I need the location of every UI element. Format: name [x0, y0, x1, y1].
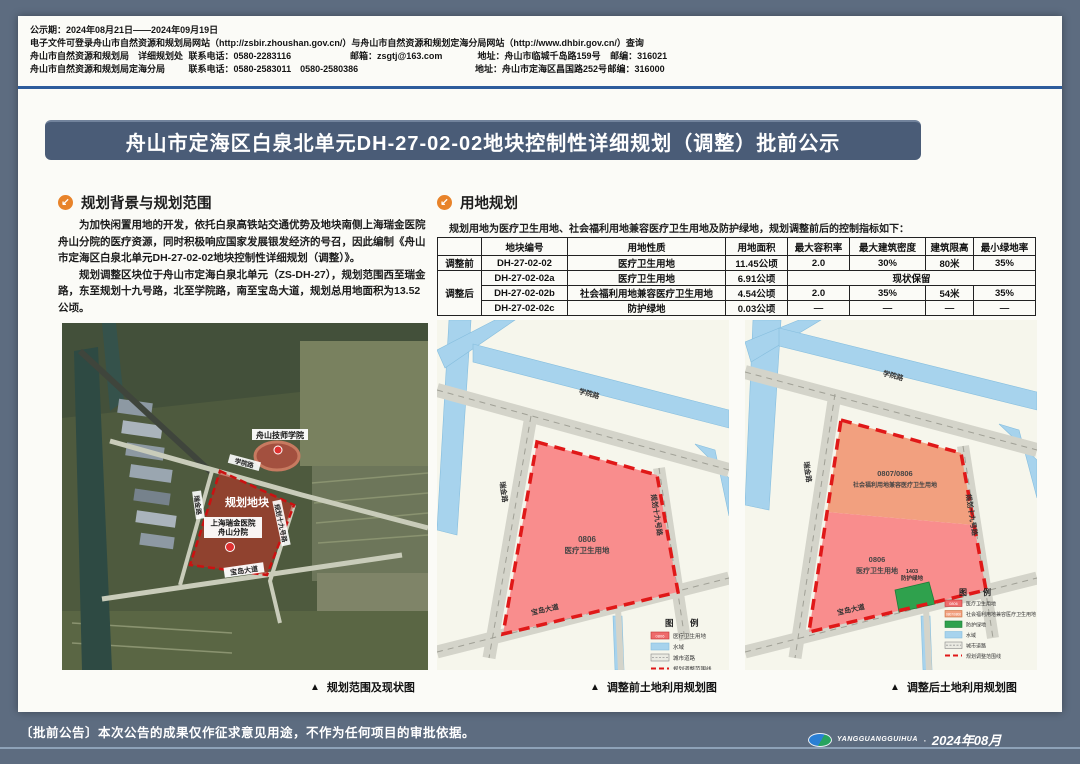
map-before-adjustment: 0806 医疗卫生用地 学院路 瑞金路 规划十九号路 宝岛大道 图 例 0806…	[437, 320, 729, 675]
title-banner: 舟山市定海区白泉北单元DH-27-02-02地块控制性详细规划（调整）批前公示	[45, 120, 921, 160]
cell-code: DH-27-02-02b	[482, 286, 568, 301]
cell-green: 35%	[974, 286, 1036, 301]
dept2-tel: 联系电话：0580-2583011 0580-2580386	[189, 63, 473, 76]
cell-use: 社会福利用地兼容医疗卫生用地	[568, 286, 726, 301]
svg-text:城市道路: 城市道路	[673, 654, 696, 662]
cell-far: 2.0	[788, 256, 850, 271]
legend-swatch-green	[945, 621, 962, 628]
svg-text:舟山技师学院: 舟山技师学院	[256, 430, 304, 440]
parcel-medical-use: 医疗卫生用地	[856, 566, 898, 575]
svg-text:城市道路: 城市道路	[966, 643, 986, 650]
parcel-medical-code: 0806	[869, 555, 886, 564]
cell-density: 35%	[850, 286, 926, 301]
map-after-image: 0807/0806 社会福利用地兼容医疗卫生用地 0806 医疗卫生用地 140…	[745, 320, 1037, 670]
svg-text:水域: 水域	[673, 643, 685, 651]
page-title: 舟山市定海区白泉北单元DH-27-02-02地块控制性详细规划（调整）批前公示	[126, 127, 841, 156]
svg-text:水域: 水域	[966, 632, 976, 639]
landuse-intro: 规划用地为医疗卫生用地、社会福利用地兼容医疗卫生用地及防护绿地，规划调整前后的控…	[449, 220, 909, 235]
svg-text:医疗卫生用地: 医疗卫生用地	[673, 632, 707, 640]
dept2-zip: 邮编：316000	[608, 63, 665, 76]
notice-period: 公示期：2024年08月21日——2024年09月19日	[30, 24, 667, 37]
footer-brand-row: YANGGUANGGUIHUA · 2024年08月	[808, 730, 1001, 749]
website-line: 电子文件可登录舟山市自然资源和规划局网站（http://zsbir.zhoush…	[30, 37, 667, 50]
svg-text:0806: 0806	[949, 602, 957, 606]
cell-use: 医疗卫生用地	[568, 271, 726, 286]
cell-code: DH-27-02-02a	[482, 271, 568, 286]
table-row: DH-27-02-02b 社会福利用地兼容医疗卫生用地 4.54公顷 2.0 3…	[438, 286, 1036, 301]
section-arrow-icon: ↙	[437, 195, 452, 210]
cell-height: 54米	[926, 286, 974, 301]
group-after: 调整后	[438, 271, 482, 316]
header-far: 最大容积率	[788, 238, 850, 256]
brand-logo-icon	[808, 733, 832, 747]
notice-page: 公示期：2024年08月21日——2024年09月19日 电子文件可登录舟山市自…	[18, 16, 1062, 712]
svg-text:防护绿地: 防护绿地	[966, 622, 986, 629]
cell-use: 防护绿地	[568, 301, 726, 316]
parcel-welfare-use: 社会福利用地兼容医疗卫生用地	[852, 481, 937, 489]
map-before-caption: ▲ 调整前土地利用规划图	[590, 679, 717, 695]
section-landuse-heading: ↙ 用地规划	[437, 192, 518, 213]
section-arrow-icon: ↙	[58, 195, 73, 210]
dept1-zip: 邮编：316021	[610, 50, 667, 63]
table-header-row: 地块编号 用地性质 用地面积 最大容积率 最大建筑密度 建筑限高 最小绿地率	[438, 238, 1036, 256]
triangle-marker-icon: ▲	[890, 682, 900, 693]
satellite-image: 舟山技师学院 学院路 瑞金路 规划十九号路 规划地块 上海瑞金医院 舟山分院	[62, 323, 428, 670]
table-row: 调整前 DH-27-02-02 医疗卫生用地 11.45公顷 2.0 30% 8…	[438, 256, 1036, 271]
map-after-caption: ▲ 调整后土地利用规划图	[890, 679, 1017, 695]
cell-code: DH-27-02-02c	[482, 301, 568, 316]
dept2-org: 舟山市自然资源和规划局定海分局	[30, 63, 186, 76]
svg-text:上海瑞金医院: 上海瑞金医院	[211, 518, 256, 528]
parcel-green-code: 1403	[906, 569, 918, 575]
cell-far: 2.0	[788, 286, 850, 301]
dept2-addr: 地址：舟山市定海区昌国路252号	[475, 63, 605, 76]
svg-text:医疗卫生用地: 医疗卫生用地	[966, 601, 996, 608]
background-paragraph-1: 为加快闲置用地的开发，依托白泉高铁站交通优势及地块南侧上海瑞金医院舟山分院的医疗…	[58, 217, 430, 267]
section-background-heading: ↙ 规划背景与规划范围	[58, 192, 212, 213]
cell-height: —	[926, 301, 974, 316]
dept2-line: 舟山市自然资源和规划局定海分局 联系电话：0580-2583011 0580-2…	[30, 63, 667, 76]
header-area: 用地面积	[726, 238, 788, 256]
parcel-code: 0806	[578, 535, 596, 544]
header-green: 最小绿地率	[974, 238, 1036, 256]
satellite-map: 舟山技师学院 学院路 瑞金路 规划十九号路 规划地块 上海瑞金医院 舟山分院	[62, 323, 428, 675]
header-height: 建筑限高	[926, 238, 974, 256]
parcel-green-use: 防护绿地	[901, 574, 924, 582]
parcel-label: 规划地块	[225, 495, 270, 509]
parcel-welfare-code: 0807/0806	[877, 469, 912, 478]
footer-notice: 〔批前公告〕本次公告的成果仅作征求意见用途，不作为任何项目的审批依据。	[20, 722, 475, 741]
cell-green: 35%	[974, 256, 1036, 271]
map-after-adjustment: 0807/0806 社会福利用地兼容医疗卫生用地 0806 医疗卫生用地 140…	[745, 320, 1037, 675]
triangle-marker-icon: ▲	[590, 682, 600, 693]
svg-text:图 例: 图 例	[665, 618, 703, 628]
background-paragraphs: 为加快闲置用地的开发，依托白泉高铁站交通优势及地块南侧上海瑞金医院舟山分院的医疗…	[58, 217, 430, 316]
dept1-org: 舟山市自然资源和规划局 详细规划处	[30, 50, 186, 63]
cell-area: 4.54公顷	[726, 286, 788, 301]
dept1-mail: 邮箱：zsgtj@163.com	[350, 50, 475, 63]
dept1-tel: 联系电话：0580-2283116	[189, 50, 348, 63]
header-divider	[18, 86, 1062, 89]
cell-code: DH-27-02-02	[482, 256, 568, 271]
header-code: 地块编号	[482, 238, 568, 256]
satellite-map-caption: ▲ 规划范围及现状图	[310, 679, 415, 695]
svg-text:图 例: 图 例	[959, 587, 995, 597]
dept1-addr: 地址：舟山市临城千岛路159号	[478, 50, 608, 63]
header-info: 公示期：2024年08月21日——2024年09月19日 电子文件可登录舟山市自…	[30, 24, 667, 76]
header-blank	[438, 238, 482, 256]
cell-area: 0.03公顷	[726, 301, 788, 316]
table-row: 调整后 DH-27-02-02a 医疗卫生用地 6.91公顷 现状保留	[438, 271, 1036, 286]
svg-text:0807/0806: 0807/0806	[946, 613, 961, 617]
svg-text:舟山分院: 舟山分院	[218, 527, 248, 537]
parcel-use: 医疗卫生用地	[565, 545, 610, 555]
footer-date: 2024年08月	[932, 730, 1001, 749]
svg-text:社会福利用地兼容医疗卫生用地: 社会福利用地兼容医疗卫生用地	[966, 611, 1036, 618]
svg-text:0806: 0806	[656, 634, 666, 639]
svg-text:规划调整范围线: 规划调整范围线	[966, 653, 1001, 660]
land-use-table: 地块编号 用地性质 用地面积 最大容积率 最大建筑密度 建筑限高 最小绿地率 调…	[437, 237, 1036, 316]
hospital-marker-icon	[226, 543, 235, 552]
cell-status-retained: 现状保留	[788, 271, 1036, 286]
cell-area: 11.45公顷	[726, 256, 788, 271]
cell-height: 80米	[926, 256, 974, 271]
group-before: 调整前	[438, 256, 482, 271]
dept1-line: 舟山市自然资源和规划局 详细规划处 联系电话：0580-2283116 邮箱：z…	[30, 50, 667, 63]
footer-brand: YANGGUANGGUIHUA	[837, 736, 918, 743]
cell-area: 6.91公顷	[726, 271, 788, 286]
cell-far: —	[788, 301, 850, 316]
background-paragraph-2: 规划调整区块位于舟山市定海白泉北单元（ZS-DH-27），规划范围西至瑞金路，东…	[58, 267, 430, 317]
cell-use: 医疗卫生用地	[568, 256, 726, 271]
header-density: 最大建筑密度	[850, 238, 926, 256]
section-background-title: 规划背景与规划范围	[81, 192, 212, 213]
cell-density: 30%	[850, 256, 926, 271]
cell-green: —	[974, 301, 1036, 316]
cell-density: —	[850, 301, 926, 316]
map-before-image: 0806 医疗卫生用地 学院路 瑞金路 规划十九号路 宝岛大道 图 例 0806…	[437, 320, 729, 670]
section-landuse-title: 用地规划	[460, 192, 518, 213]
header-use: 用地性质	[568, 238, 726, 256]
school-marker-icon	[274, 446, 282, 454]
legend-swatch-water	[651, 643, 669, 650]
table-row: DH-27-02-02c 防护绿地 0.03公顷 — — — —	[438, 301, 1036, 316]
triangle-marker-icon: ▲	[310, 682, 320, 693]
footer-separator: ·	[923, 733, 927, 747]
legend-swatch-water	[945, 632, 962, 639]
